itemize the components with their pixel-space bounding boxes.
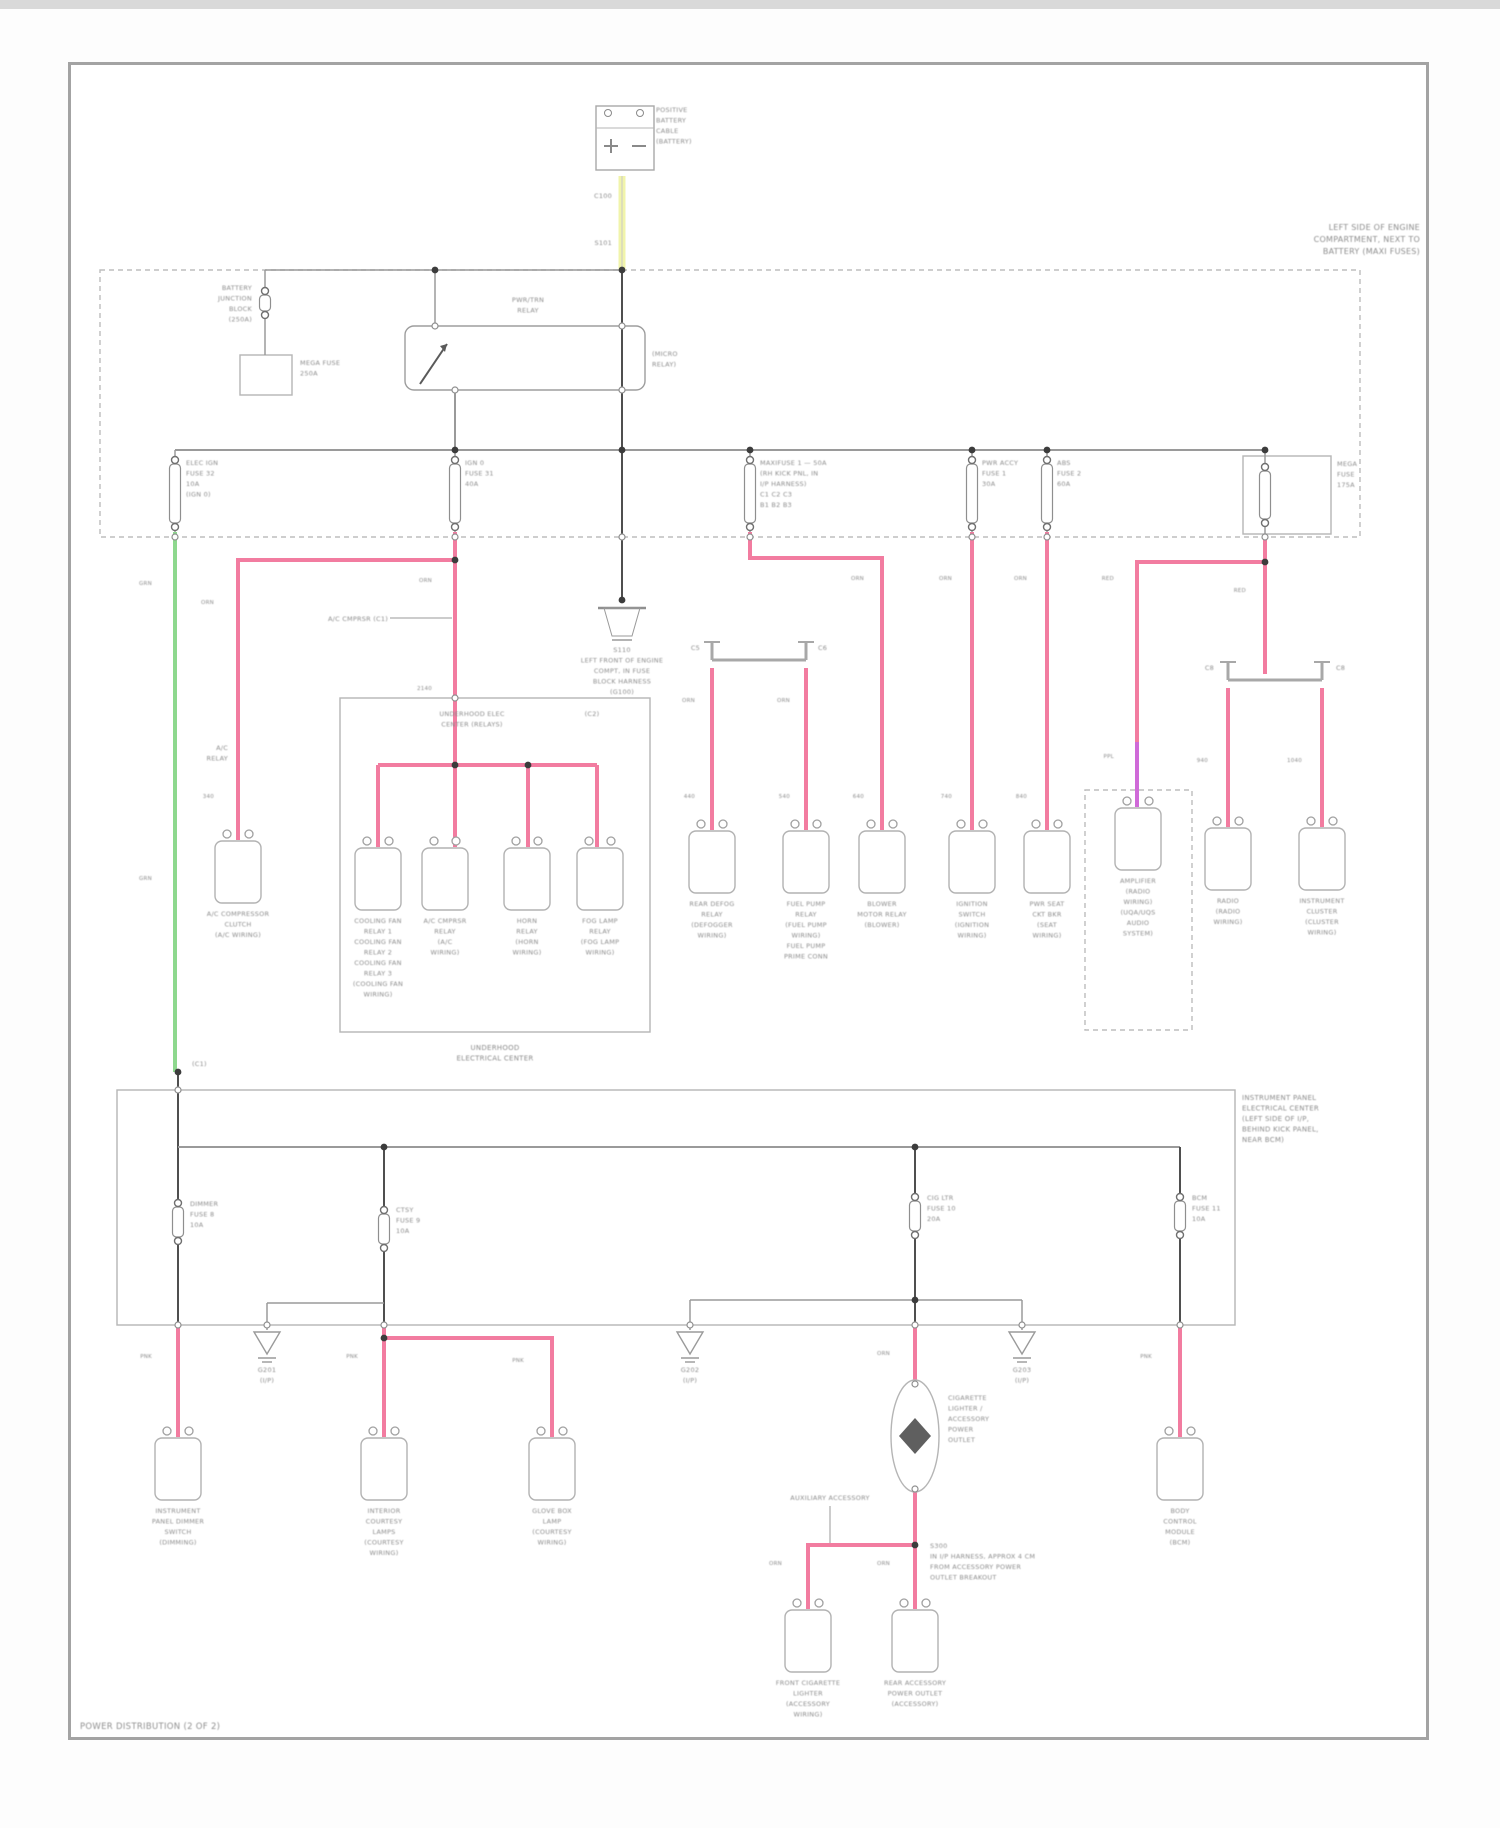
svg-text:AUXILIARY ACCESSORY: AUXILIARY ACCESSORY <box>790 1494 869 1502</box>
svg-text:INSTRUMENTPANEL DIMMERSWITCH(D: INSTRUMENTPANEL DIMMERSWITCH(DIMMING) <box>152 1507 205 1547</box>
svg-text:PNK: PNK <box>512 1358 524 1364</box>
svg-text:ORN: ORN <box>877 1351 890 1357</box>
svg-text:S300IN I/P HARNESS, APPROX 4 C: S300IN I/P HARNESS, APPROX 4 CMFROM ACCE… <box>930 1542 1035 1582</box>
component-cylinder: FUEL PUMPRELAY(FUEL PUMPWIRING)FUEL PUMP… <box>783 820 829 961</box>
svg-text:540: 540 <box>779 794 790 800</box>
svg-text:FOG LAMPRELAY(FOG LAMPWIRING): FOG LAMPRELAY(FOG LAMPWIRING) <box>581 917 620 957</box>
component-boxes <box>100 270 1360 1325</box>
component-cylinder: REAR DEFOGRELAY(DEFOGGERWIRING) <box>689 820 735 940</box>
svg-text:FUEL PUMPRELAY(FUEL PUMPWIRING: FUEL PUMPRELAY(FUEL PUMPWIRING)FUEL PUMP… <box>784 900 828 961</box>
svg-text:ABSFUSE 260A: ABSFUSE 260A <box>1057 459 1081 488</box>
svg-text:LEFT SIDE OF ENGINECOMPARTMENT: LEFT SIDE OF ENGINECOMPARTMENT, NEXT TOB… <box>1314 223 1420 256</box>
svg-text:BODYCONTROLMODULE(BCM): BODYCONTROLMODULE(BCM) <box>1163 1507 1197 1547</box>
wire-p <box>238 560 455 840</box>
component-cylinder: PWR SEATCKT BKR(SEATWIRING) <box>1024 820 1070 940</box>
svg-text:S101: S101 <box>594 239 612 247</box>
svg-text:POSITIVEBATTERYCABLE(BATTERY): POSITIVEBATTERYCABLE(BATTERY) <box>656 106 692 146</box>
svg-text:MEGA FUSE250A: MEGA FUSE250A <box>300 359 340 378</box>
svg-text:RED: RED <box>1234 588 1246 594</box>
svg-text:IGNITIONSWITCH(IGNITIONWIRING): IGNITIONSWITCH(IGNITIONWIRING) <box>955 900 989 940</box>
svg-text:640: 640 <box>853 794 864 800</box>
svg-text:PWR ACCYFUSE 130A: PWR ACCYFUSE 130A <box>982 459 1018 488</box>
svg-text:ORN: ORN <box>877 1561 890 1567</box>
svg-text:A/CRELAY: A/CRELAY <box>206 744 228 763</box>
svg-text:C5: C5 <box>691 644 700 652</box>
component-cylinder: INTERIORCOURTESYLAMPS(COURTESYWIRING) <box>361 1427 407 1557</box>
svg-text:GLOVE BOXLAMP(COURTESYWIRING): GLOVE BOXLAMP(COURTESYWIRING) <box>532 1507 572 1547</box>
svg-text:C8: C8 <box>1205 664 1214 672</box>
component-cylinder: FRONT CIGARETTELIGHTER(ACCESSORYWIRING) <box>776 1599 841 1719</box>
svg-text:RED: RED <box>1102 576 1114 582</box>
svg-text:BCMFUSE 1110A: BCMFUSE 1110A <box>1192 1194 1221 1223</box>
component-cylinder: GLOVE BOXLAMP(COURTESYWIRING) <box>529 1427 575 1547</box>
svg-text:AMPLIFIER(RADIOWIRING)(UQA/UQS: AMPLIFIER(RADIOWIRING)(UQA/UQSAUDIOSYSTE… <box>1120 877 1156 938</box>
svg-text:UNDERHOODELECTRICAL CENTER: UNDERHOODELECTRICAL CENTER <box>457 1044 534 1063</box>
svg-text:ORN: ORN <box>201 600 214 606</box>
component-cylinder: FOG LAMPRELAY(FOG LAMPWIRING) <box>577 837 623 957</box>
svg-text:PNK: PNK <box>346 1354 358 1360</box>
svg-text:A/C CMPRSR (C1): A/C CMPRSR (C1) <box>328 615 388 623</box>
svg-text:BATTERYJUNCTIONBLOCK(250A): BATTERYJUNCTIONBLOCK(250A) <box>217 284 252 324</box>
svg-text:ORN: ORN <box>682 698 695 704</box>
svg-text:840: 840 <box>1016 794 1027 800</box>
svg-text:940: 940 <box>1197 758 1208 764</box>
component-cylinder: HORNRELAY(HORNWIRING) <box>504 837 550 957</box>
svg-text:INTERIORCOURTESYLAMPS(COURTESY: INTERIORCOURTESYLAMPS(COURTESYWIRING) <box>364 1507 403 1557</box>
svg-text:ORN: ORN <box>939 576 952 582</box>
component-cylinder: INSTRUMENTCLUSTER(CLUSTERWIRING) <box>1299 817 1345 937</box>
wiring-diagram: A/C COMPRESSORCLUTCH(A/C WIRING)COOLING … <box>0 0 1500 1828</box>
component-cylinder: A/C COMPRESSORCLUTCH(A/C WIRING) <box>207 830 270 939</box>
svg-text:PNK: PNK <box>1140 1354 1152 1360</box>
svg-text:CIG LTRFUSE 1020A: CIG LTRFUSE 1020A <box>927 1194 956 1223</box>
svg-text:340: 340 <box>203 794 214 800</box>
svg-text:ORN: ORN <box>777 698 790 704</box>
svg-text:REAR DEFOGRELAY(DEFOGGERWIRING: REAR DEFOGRELAY(DEFOGGERWIRING) <box>689 900 734 940</box>
relay-switch <box>420 344 447 384</box>
jumper-bars <box>704 642 1330 680</box>
svg-text:G202(I/P): G202(I/P) <box>681 1366 699 1385</box>
svg-text:A/C COMPRESSORCLUTCH(A/C WIRIN: A/C COMPRESSORCLUTCH(A/C WIRING) <box>207 910 270 939</box>
svg-text:BLOWERMOTOR RELAY(BLOWER): BLOWERMOTOR RELAY(BLOWER) <box>857 900 906 929</box>
svg-text:(C1): (C1) <box>192 1060 207 1068</box>
component-cylinders: A/C COMPRESSORCLUTCH(A/C WIRING)COOLING … <box>152 797 1345 1719</box>
wire-color-labels: GRNGRNORN340ORN2140ORN440ORN540ORN640ORN… <box>139 576 1302 1567</box>
svg-text:(C2): (C2) <box>585 710 600 718</box>
component-cylinder: A/C CMPRSRRELAY(A/CWIRING) <box>422 837 468 957</box>
wire-p <box>384 1338 552 1437</box>
svg-text:UNDERHOOD ELECCENTER (RELAYS): UNDERHOOD ELECCENTER (RELAYS) <box>439 710 505 729</box>
svg-text:PPL: PPL <box>1104 754 1115 760</box>
svg-text:A/C CMPRSRRELAY(A/CWIRING): A/C CMPRSRRELAY(A/CWIRING) <box>424 917 467 957</box>
splice-symbol <box>598 608 646 640</box>
svg-text:S110LEFT FRONT OF ENGINECOMPT,: S110LEFT FRONT OF ENGINECOMPT, IN FUSEBL… <box>581 646 663 696</box>
svg-text:(MICRORELAY): (MICRORELAY) <box>652 350 678 369</box>
svg-text:PNK: PNK <box>140 1354 152 1360</box>
component-cylinder: RADIO(RADIOWIRING) <box>1205 817 1251 926</box>
svg-text:MAXIFUSE 1 — 50A(RH KICK PNL,: MAXIFUSE 1 — 50A(RH KICK PNL, INI/P HARN… <box>760 459 827 509</box>
svg-text:RADIO(RADIOWIRING): RADIO(RADIOWIRING) <box>1214 897 1243 926</box>
svg-text:ORN: ORN <box>851 576 864 582</box>
svg-text:MEGAFUSE175A: MEGAFUSE175A <box>1337 460 1358 489</box>
page-footer-label: POWER DISTRIBUTION (2 OF 2) <box>80 1722 220 1732</box>
svg-text:INSTRUMENT PANELELECTRICAL CEN: INSTRUMENT PANELELECTRICAL CENTER(LEFT S… <box>1242 1094 1319 1144</box>
component-cylinder: COOLING FANRELAY 1COOLING FANRELAY 2COOL… <box>353 837 403 999</box>
svg-text:ELEC IGNFUSE 3210A(IGN 0): ELEC IGNFUSE 3210A(IGN 0) <box>186 459 218 499</box>
svg-text:PWR/TRNRELAY: PWR/TRNRELAY <box>512 296 544 315</box>
fuse-symbols <box>170 288 1271 1252</box>
battery-symbol <box>596 106 654 170</box>
svg-text:C6: C6 <box>818 644 827 652</box>
component-cylinder: IGNITIONSWITCH(IGNITIONWIRING) <box>949 820 995 940</box>
svg-text:CIGARETTELIGHTER /ACCESSORYPOW: CIGARETTELIGHTER /ACCESSORYPOWEROUTLET <box>948 1394 989 1444</box>
component-cylinder: BODYCONTROLMODULE(BCM) <box>1157 1427 1203 1547</box>
component-cylinder: REAR ACCESSORYPOWER OUTLET(ACCESSORY) <box>884 1599 946 1708</box>
svg-text:1040: 1040 <box>1287 758 1302 764</box>
lighter-symbol <box>891 1380 939 1492</box>
wire-p <box>808 1545 915 1609</box>
svg-text:PWR SEATCKT BKR(SEATWIRING): PWR SEATCKT BKR(SEATWIRING) <box>1029 900 1064 940</box>
svg-text:440: 440 <box>684 794 695 800</box>
svg-text:COOLING FANRELAY 1COOLING FANR: COOLING FANRELAY 1COOLING FANRELAY 2COOL… <box>353 917 403 999</box>
svg-text:CTSYFUSE 910A: CTSYFUSE 910A <box>396 1206 420 1235</box>
svg-text:ORN: ORN <box>1014 576 1027 582</box>
svg-text:GRN: GRN <box>139 581 152 587</box>
svg-text:2140: 2140 <box>417 686 432 692</box>
svg-text:IGN 0FUSE 3140A: IGN 0FUSE 3140A <box>465 459 494 488</box>
svg-text:C100: C100 <box>594 192 612 200</box>
svg-text:GRN: GRN <box>139 876 152 882</box>
svg-text:740: 740 <box>941 794 952 800</box>
component-cylinder: BLOWERMOTOR RELAY(BLOWER) <box>857 820 906 929</box>
svg-text:FRONT CIGARETTELIGHTER(ACCESSO: FRONT CIGARETTELIGHTER(ACCESSORYWIRING) <box>776 1679 841 1719</box>
svg-text:ORN: ORN <box>769 1561 782 1567</box>
svg-text:INSTRUMENTCLUSTER(CLUSTERWIRIN: INSTRUMENTCLUSTER(CLUSTERWIRING) <box>1299 897 1344 937</box>
component-cylinder: INSTRUMENTPANEL DIMMERSWITCH(DIMMING) <box>152 1427 205 1547</box>
svg-text:DIMMERFUSE 810A: DIMMERFUSE 810A <box>190 1200 218 1229</box>
ground-symbols <box>254 1332 1035 1362</box>
svg-text:REAR ACCESSORYPOWER OUTLET(ACC: REAR ACCESSORYPOWER OUTLET(ACCESSORY) <box>884 1679 946 1708</box>
diagram-page: A/C COMPRESSORCLUTCH(A/C WIRING)COOLING … <box>0 0 1500 1828</box>
svg-text:G201(I/P): G201(I/P) <box>258 1366 276 1385</box>
component-cylinder: AMPLIFIER(RADIOWIRING)(UQA/UQSAUDIOSYSTE… <box>1115 797 1161 938</box>
svg-text:C8: C8 <box>1336 664 1345 672</box>
svg-text:ORN: ORN <box>419 578 432 584</box>
svg-text:G203(I/P): G203(I/P) <box>1013 1366 1031 1385</box>
svg-text:HORNRELAY(HORNWIRING): HORNRELAY(HORNWIRING) <box>513 917 542 957</box>
